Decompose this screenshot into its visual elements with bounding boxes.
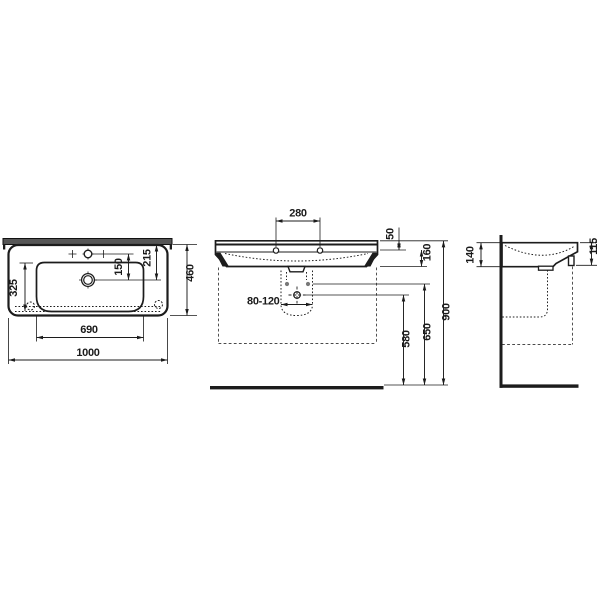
basin-bowl-outline — [37, 263, 144, 312]
drain-flange-side — [539, 266, 554, 270]
dim-rim-height-900: 900 — [441, 241, 453, 385]
technical-drawing-sheet: 150 215 325 690 1000 460 — [0, 0, 600, 600]
svg-text:460: 460 — [185, 264, 197, 282]
svg-text:325: 325 — [8, 279, 20, 297]
svg-text:115: 115 — [588, 238, 600, 255]
dim-drain-pipe-range-80-120: 80-120 — [247, 296, 312, 308]
svg-text:160: 160 — [422, 244, 434, 262]
deck-hole-right — [317, 248, 322, 253]
svg-text:150: 150 — [113, 258, 125, 276]
trap-fixing-right — [306, 282, 310, 286]
drawing-svg: 150 215 325 690 1000 460 — [0, 0, 600, 600]
dim-holes-to-skirt-160: 160 — [380, 244, 434, 267]
basin-side-outline — [502, 243, 578, 267]
floor-line-side — [500, 384, 579, 387]
svg-text:50: 50 — [385, 228, 397, 240]
dim-fixing-height-650: 650 — [313, 284, 434, 385]
drain-inner — [84, 276, 93, 285]
svg-text:650: 650 — [422, 323, 434, 341]
drain-pipe-side — [502, 270, 548, 317]
dim-overall-depth-460: 460 — [170, 245, 197, 316]
clearance-zone — [219, 268, 377, 344]
floor-line-front — [210, 386, 384, 389]
svg-text:900: 900 — [441, 303, 453, 321]
overflow-fitting — [569, 256, 575, 266]
side-view: 140 115 — [465, 235, 600, 388]
tap-hole — [84, 250, 92, 258]
clearance-zone-side — [502, 267, 573, 345]
svg-text:140: 140 — [465, 246, 477, 264]
dim-top-to-holes-50: 50 — [380, 228, 448, 251]
trap-inlet — [287, 272, 307, 280]
wall-band — [3, 239, 172, 245]
trap-fixing-left — [285, 282, 289, 286]
wall-band-right-cap — [170, 244, 172, 250]
svg-text:280: 280 — [289, 208, 307, 220]
dim-bowl-width-690: 690 — [37, 316, 144, 342]
top-view: 150 215 325 690 1000 460 — [3, 239, 197, 365]
outlet-crosshair-lines — [289, 287, 306, 304]
svg-text:580: 580 — [401, 330, 413, 348]
dim-drain-height-580: 580 — [305, 295, 413, 385]
deck-hole-left — [273, 248, 278, 253]
wall-line-side — [500, 235, 503, 388]
svg-text:215: 215 — [142, 249, 154, 267]
wall-band-left-cap — [3, 244, 5, 250]
trap-bottom — [281, 306, 313, 316]
drain-flange — [288, 267, 305, 272]
dim-front-edge-height-115: 115 — [576, 238, 600, 265]
front-view: 280 50 160 80-120 580 650 — [210, 208, 453, 390]
dim-rear-edge-height-140: 140 — [465, 243, 500, 267]
svg-text:1000: 1000 — [76, 347, 99, 359]
svg-text:690: 690 — [80, 324, 98, 336]
svg-text:80-120: 80-120 — [247, 296, 280, 308]
